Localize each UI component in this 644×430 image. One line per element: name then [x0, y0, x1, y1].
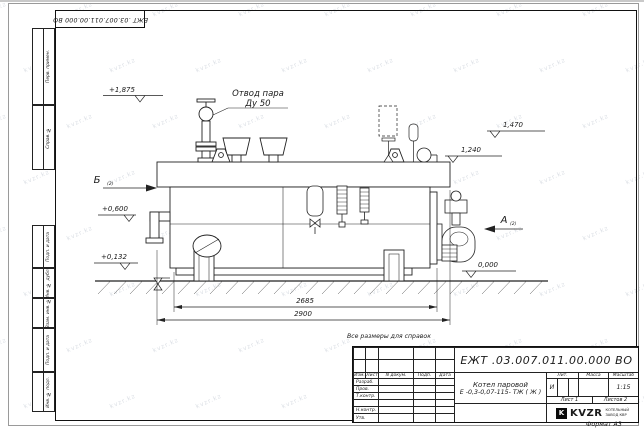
- product-name: Котел паровой: [473, 381, 528, 389]
- sig-cell: [413, 378, 435, 385]
- reference-dimensions-note: Все размеры для справок: [347, 333, 431, 340]
- sig-cell: [378, 399, 413, 406]
- steam-outlet-label-line2: Ду 50: [244, 99, 270, 109]
- revision-cell: [413, 359, 435, 372]
- sig-cell: [413, 413, 435, 422]
- sig-cell: [413, 385, 435, 392]
- sig-cell: [413, 406, 435, 413]
- revision-cell: [413, 347, 435, 359]
- logo-cell: K KVZR КОТЕЛЬНЫЙ ЗАВОД КВР: [546, 403, 638, 422]
- steam-outlet-label-line1: Отвод пара: [232, 89, 284, 99]
- mass-value: [578, 378, 608, 396]
- steam-outlet-callout: [213, 108, 288, 115]
- boiler-upper-drum: [157, 162, 450, 187]
- company-logo: K KVZR КОТЕЛЬНЫЙ ЗАВОД КВР: [556, 408, 629, 419]
- litera-cell-3: [568, 378, 578, 396]
- sheets-cell: Листов 2: [592, 396, 638, 403]
- row-approved: Утв.: [353, 413, 378, 422]
- gauge-siphon-loop: [417, 148, 437, 162]
- row-developed: Разраб.: [353, 378, 378, 385]
- drawing-sheet: kvzr.kzkvzr.kzkvzr.kzkvzr.kzkvzr.kzkvzr.…: [0, 0, 644, 430]
- scale-value: 1:15: [608, 378, 638, 396]
- manhole: [193, 235, 221, 257]
- revision-cell: [353, 359, 365, 372]
- doc-number: ЕЖТ .03.007.011.00.000 ВО: [460, 354, 632, 367]
- sig-cell: [435, 385, 454, 392]
- sig-cell: [378, 378, 413, 385]
- feed-pipe-elbow: [146, 212, 170, 243]
- revision-cell: [365, 347, 378, 359]
- kvzr-logo-subtext: КОТЕЛЬНЫЙ ЗАВОД КВР: [605, 408, 629, 417]
- sig-cell: [435, 378, 454, 385]
- sig-cell: [435, 399, 454, 406]
- revision-cell: [435, 359, 454, 372]
- elevation-0000: 0,000: [478, 261, 499, 269]
- level-sensor-capsule: [409, 124, 418, 162]
- sig-cell: [435, 406, 454, 413]
- revision-cell: [378, 359, 413, 372]
- row-checked: Пров.: [353, 385, 378, 392]
- view-label-a: А: [500, 215, 508, 226]
- sig-cell: [378, 385, 413, 392]
- sig-cell: [413, 392, 435, 399]
- title-block: Изм. Лист N докум. Подп. Дата Разраб. Пр…: [352, 346, 639, 423]
- revision-cell: [435, 347, 454, 359]
- sig-cell: [353, 399, 378, 406]
- view-label-b-ref: (2): [107, 181, 114, 187]
- sig-cell: [378, 392, 413, 399]
- revision-cell: [365, 359, 378, 372]
- revision-cell: [353, 347, 365, 359]
- elevation-1470: 1,470: [503, 121, 524, 129]
- view-label-a-ref: (2): [510, 221, 517, 227]
- dim-shell-length: 2685: [296, 297, 314, 305]
- sig-cell: [413, 399, 435, 406]
- sheet-cell: Лист 1: [546, 396, 592, 403]
- elevation-0132: +0,132: [101, 253, 127, 261]
- kvzr-logo-text: KVZR: [570, 408, 602, 419]
- view-arrow-a: [484, 226, 523, 233]
- elevation-1875: +1,875: [109, 86, 135, 94]
- sig-cell: [435, 413, 454, 422]
- product-name-cell: Котел паровой Е -0,3-0,07-115- ТЖ ( Ж ): [454, 372, 546, 403]
- dim-overall-length: 2900: [294, 310, 312, 318]
- elevation-0600: +0,600: [102, 205, 128, 213]
- safety-valve-hoods: [223, 138, 287, 162]
- company-cell: [454, 403, 546, 422]
- row-ncontrol: Н.контр.: [353, 406, 378, 413]
- litera-cell-2: [557, 378, 568, 396]
- burner-assembly: [437, 191, 475, 262]
- product-model: Е -0,3-0,07-115- ТЖ ( Ж ): [460, 389, 541, 396]
- steam-outlet-valve: [196, 99, 216, 162]
- format-label: Формат А3: [586, 421, 622, 428]
- doc-number-cell: ЕЖТ .03.007.011.00.000 ВО: [454, 347, 638, 372]
- ground-line: [95, 281, 548, 294]
- view-label-b: Б: [94, 175, 101, 186]
- sig-cell: [435, 392, 454, 399]
- sig-cell: [378, 406, 413, 413]
- sig-cell: [378, 413, 413, 422]
- row-tcontrol: Т.контр.: [353, 392, 378, 399]
- kvzr-logo-icon: K: [556, 408, 567, 419]
- revision-cell: [378, 347, 413, 359]
- elevation-1240: 1,240: [461, 146, 482, 154]
- litera-value: И: [546, 378, 557, 396]
